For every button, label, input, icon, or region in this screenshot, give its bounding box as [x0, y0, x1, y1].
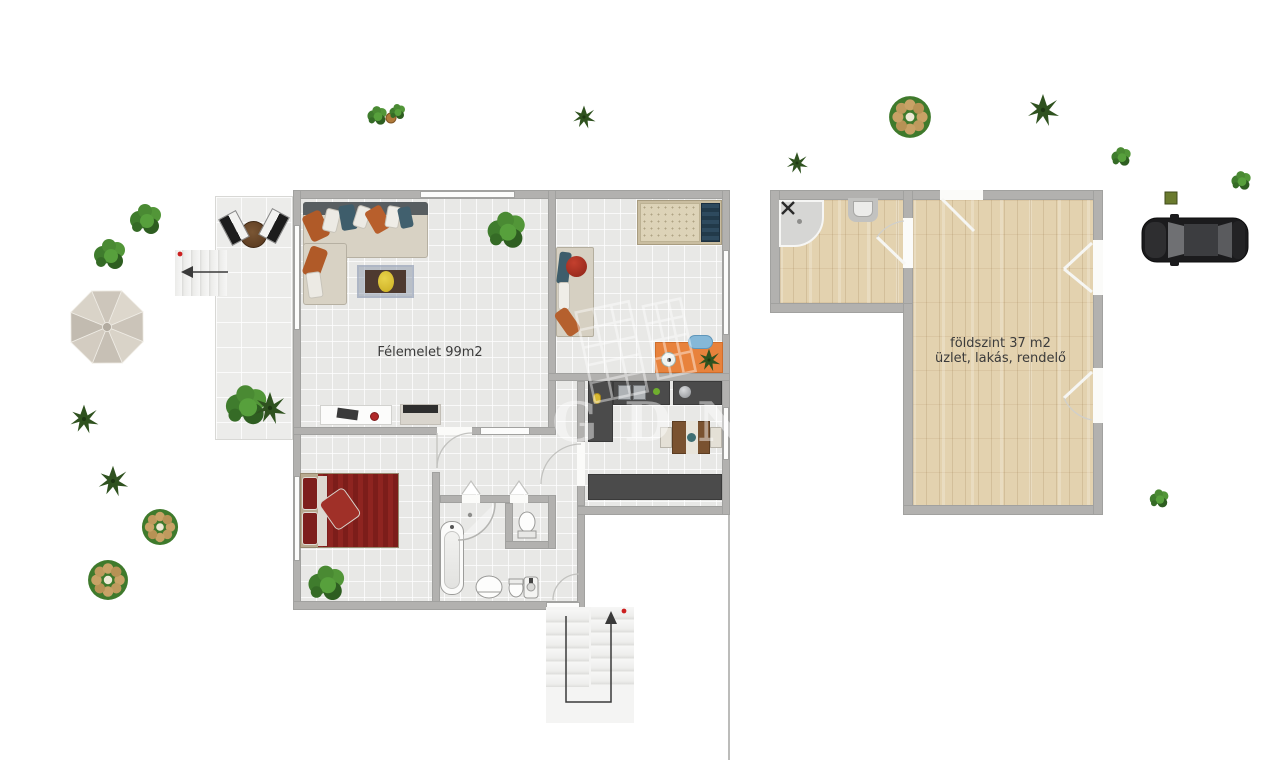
- kitchen-sink-right: [633, 385, 646, 400]
- right-wall-wing-bottom: [770, 303, 913, 313]
- interior-window: [480, 427, 530, 435]
- right-wall-main-left: [903, 303, 913, 515]
- palm-plant: [1028, 94, 1059, 126]
- dining-chair-left: [660, 427, 672, 448]
- door-gap-shower: [462, 495, 480, 503]
- wall-right: [722, 190, 730, 515]
- right-wall-top: [770, 190, 1103, 200]
- wall-wc-right: [548, 495, 556, 549]
- floorplan-canvas: Félemelet 99m2 földszint 37 m2 üzlet, la…: [0, 0, 1280, 760]
- right-plan-label-line1: földszint 37 m2: [950, 336, 1051, 351]
- window-kitchen-right: [723, 407, 729, 460]
- kitchen-counter-left: [588, 381, 613, 442]
- rug-pouf-yellow: [378, 271, 394, 292]
- left-plan-label: Félemelet 99m2: [360, 345, 500, 360]
- wall-kitchen-top: [548, 373, 730, 381]
- desk-chair-red: [370, 412, 379, 421]
- door-gap-wc: [510, 495, 528, 503]
- wall-bottom-left: [293, 601, 585, 610]
- sideboard-dark: [588, 474, 722, 500]
- bush: [367, 106, 386, 125]
- stair-flight-right: [591, 607, 634, 685]
- palm-plant: [787, 152, 808, 174]
- right-wall-right: [1093, 190, 1103, 515]
- page-divider-line: [728, 515, 730, 760]
- single-bed-mattress: [640, 203, 700, 242]
- wall-bottom-right: [577, 506, 730, 515]
- window-living-top: [420, 191, 515, 198]
- bathtub-inner: [444, 531, 460, 589]
- palm-plant: [573, 105, 595, 128]
- wall-bath-top: [440, 495, 556, 503]
- window-room2-right: [723, 250, 729, 335]
- dining-bowl: [687, 433, 696, 442]
- right-door-divider: [903, 218, 913, 268]
- window-living-left: [294, 225, 300, 330]
- stove-knob: [679, 386, 691, 398]
- box-bush: [1165, 192, 1177, 204]
- bush: [94, 239, 125, 269]
- desk-lamp-dot: [667, 358, 671, 362]
- daybed-ball-red: [566, 256, 587, 277]
- patio-umbrella: [56, 276, 158, 378]
- bush: [1150, 489, 1169, 507]
- bathtub-faucet: [450, 525, 454, 529]
- right-door-top: [940, 190, 983, 200]
- dining-chair-right: [710, 427, 722, 448]
- car: [1142, 214, 1248, 266]
- wall-bedroom-right: [432, 472, 440, 602]
- palm-plant: [71, 405, 99, 434]
- round-tree: [142, 509, 178, 545]
- bush: [390, 104, 406, 119]
- door-gap-kitchen: [577, 442, 585, 486]
- desk-chair-blue: [688, 335, 713, 349]
- bed-pillow-bottom: [302, 512, 318, 545]
- right-door-east-2: [1093, 368, 1103, 423]
- single-bed-pillow: [701, 203, 720, 242]
- right-plan-label-line2: üzlet, lakás, rendelő: [935, 351, 1066, 366]
- plant-pot: [386, 113, 396, 123]
- right-wall-bottom: [903, 505, 1103, 515]
- bush: [130, 204, 161, 234]
- bush: [1231, 171, 1250, 190]
- stair-flight-left: [546, 610, 589, 687]
- right-plan-label: földszint 37 m2 üzlet, lakás, rendelő: [918, 336, 1083, 366]
- kitchen-item-yellow: [593, 393, 601, 404]
- round-tree: [88, 560, 128, 600]
- shower-dot: [797, 219, 802, 224]
- tv: [403, 405, 438, 413]
- bush: [1111, 147, 1130, 166]
- outdoor-stairs: [175, 250, 227, 296]
- bed-pillow-top: [302, 477, 318, 510]
- round-tree: [889, 96, 931, 138]
- wing-basin-inner: [853, 201, 873, 217]
- wall-right-lower: [577, 506, 585, 610]
- kitchen-sink-left: [618, 385, 631, 400]
- daybed-pillow-white: [558, 282, 570, 310]
- palm-plant: [99, 466, 128, 496]
- right-door-east-1: [1093, 240, 1103, 295]
- kitchen-herb: [653, 388, 660, 395]
- door-gap-bedroom: [437, 427, 472, 435]
